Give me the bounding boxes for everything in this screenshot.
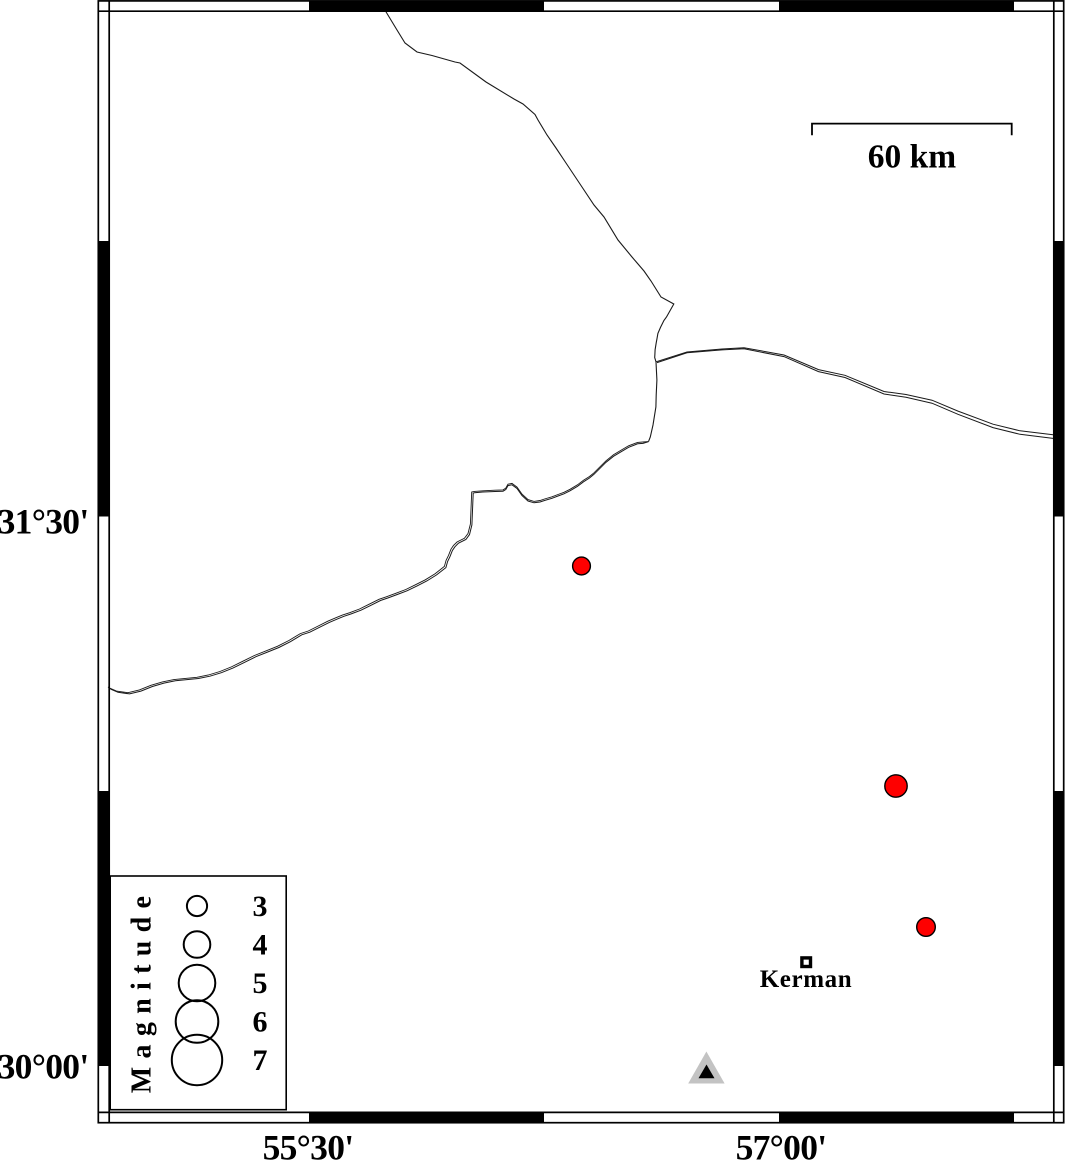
svg-text:3: 3: [253, 890, 268, 923]
svg-text:60 km: 60 km: [868, 139, 957, 176]
svg-text:57°00': 57°00': [736, 1128, 827, 1161]
svg-text:6: 6: [253, 1006, 268, 1039]
svg-text:30°00': 30°00': [0, 1047, 89, 1087]
svg-text:Magnitude: Magnitude: [127, 888, 158, 1093]
svg-text:31°30': 31°30': [0, 502, 89, 542]
svg-text:55°30': 55°30': [263, 1128, 354, 1161]
svg-text:7: 7: [253, 1044, 268, 1077]
svg-text:5: 5: [253, 967, 268, 1000]
svg-text:4: 4: [253, 929, 268, 962]
svg-text:Kerman: Kerman: [760, 966, 852, 993]
